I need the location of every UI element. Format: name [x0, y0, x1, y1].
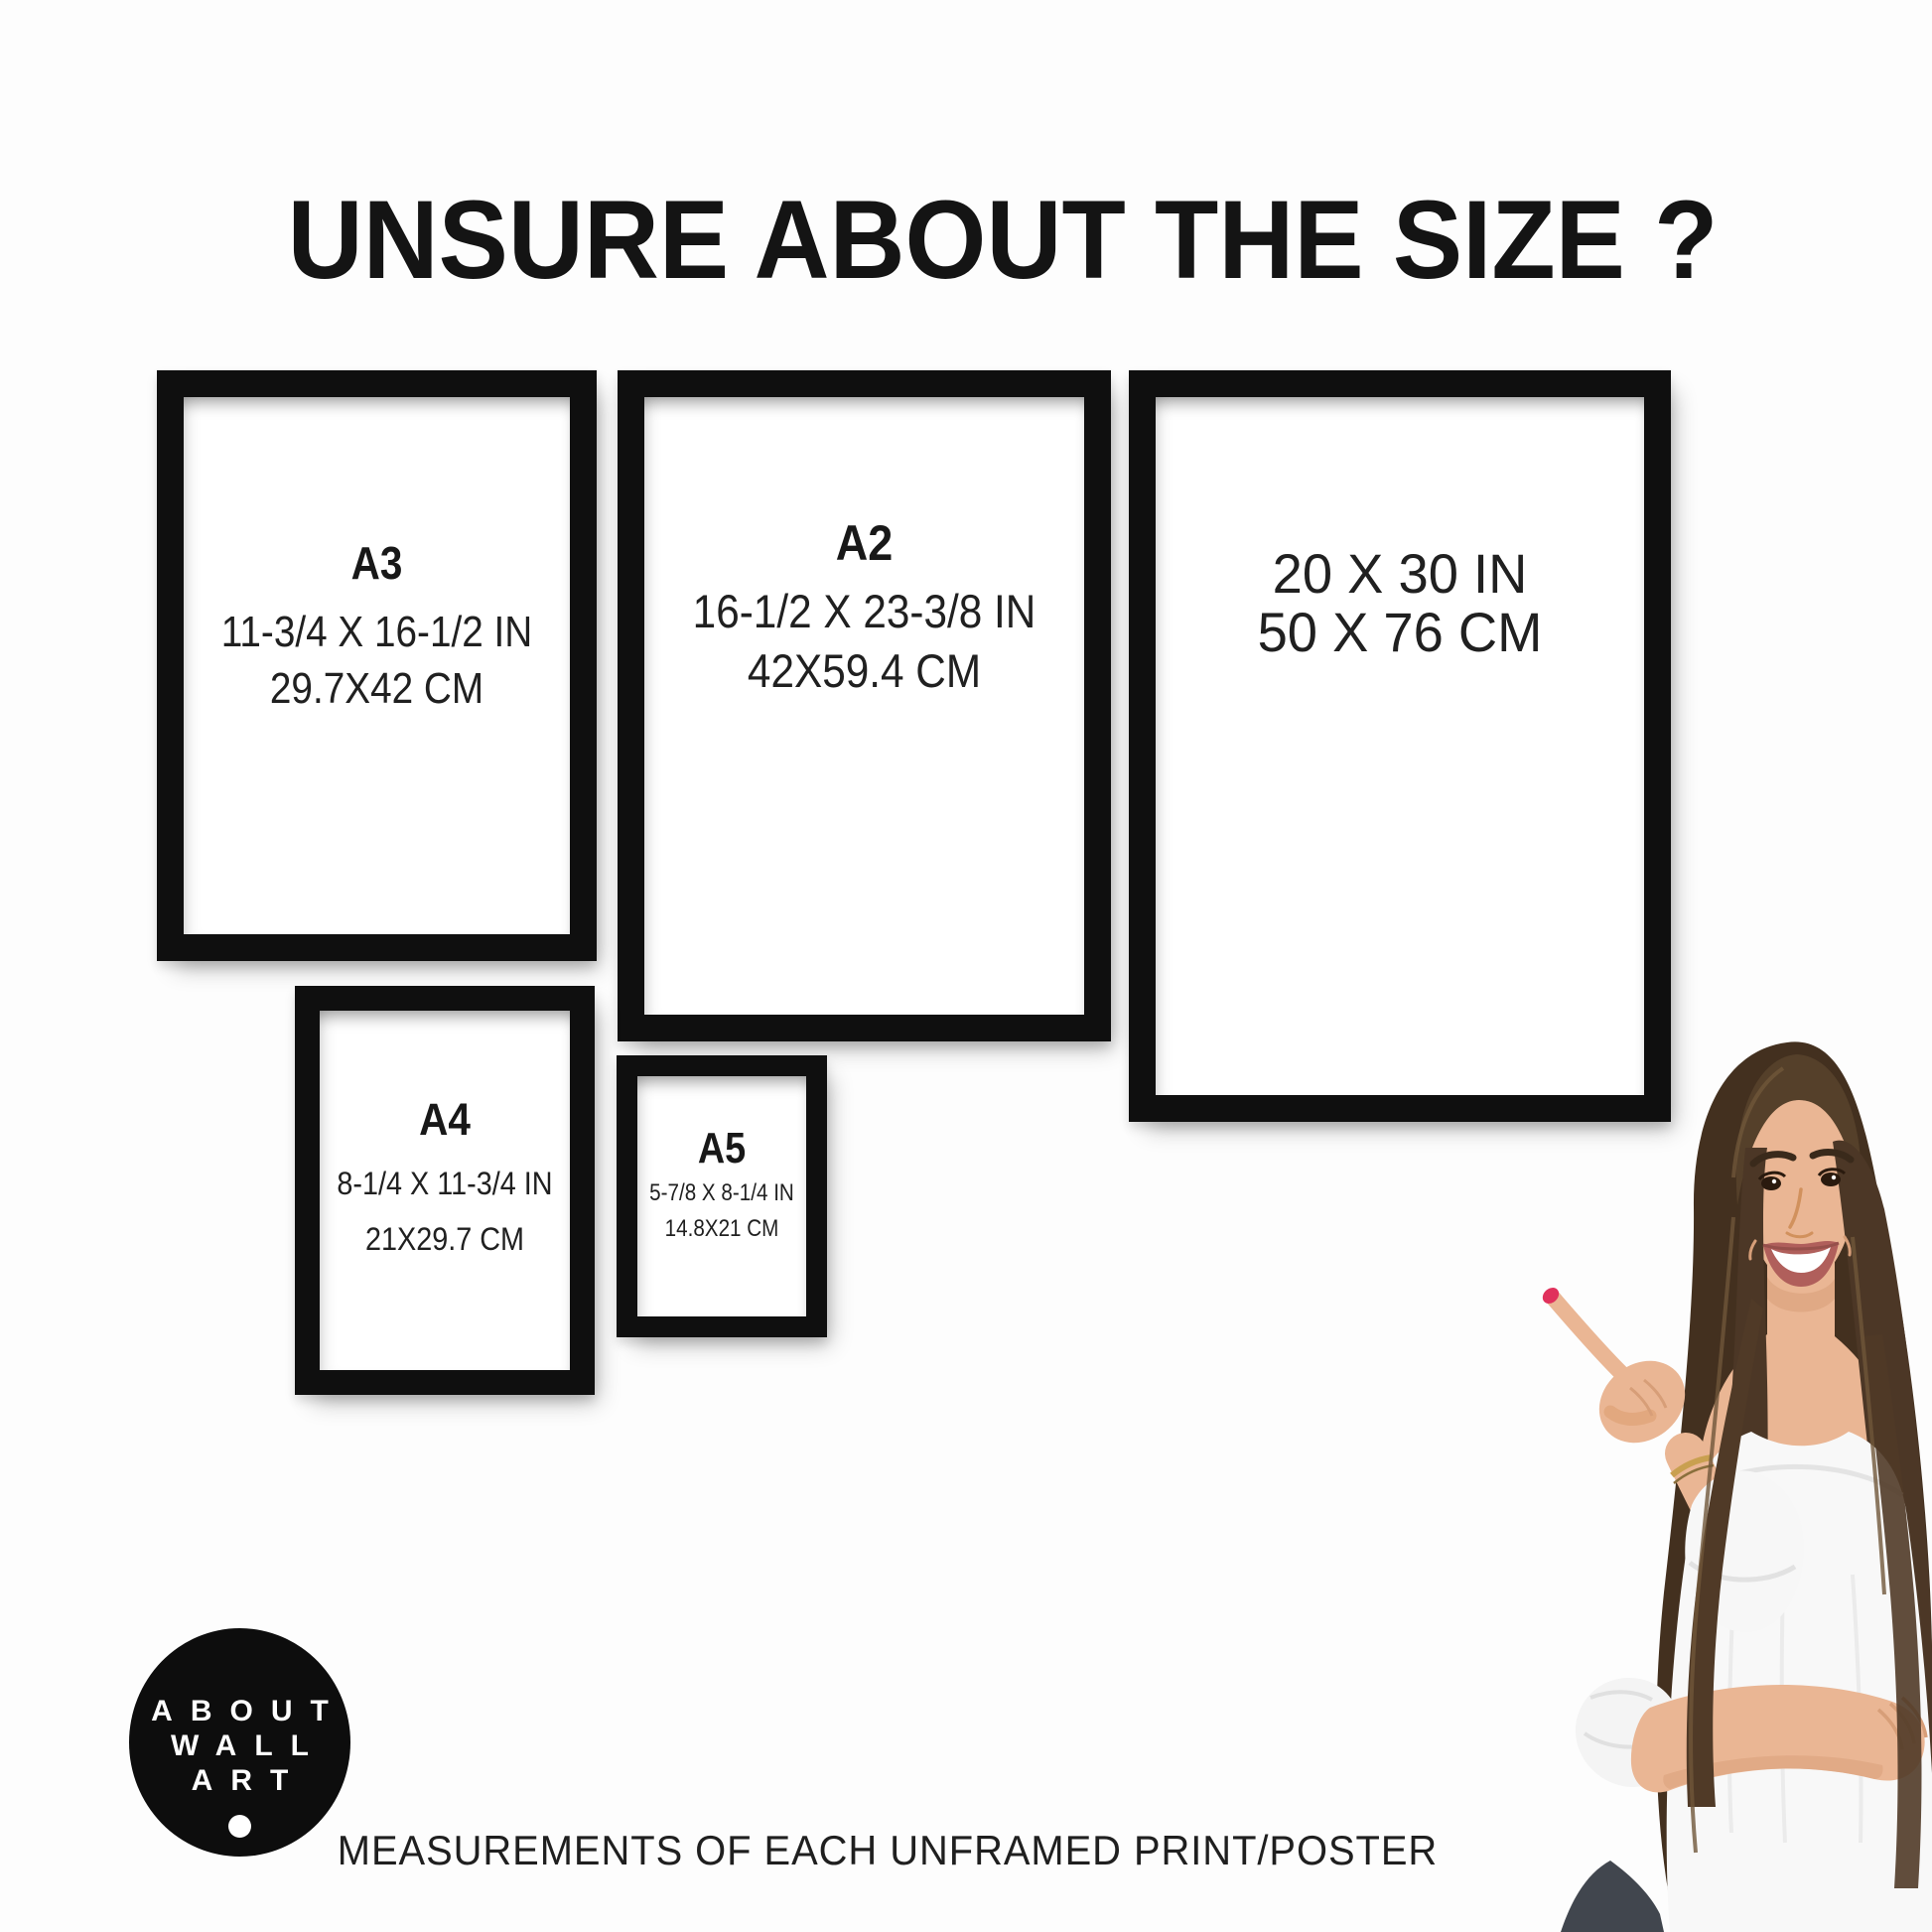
frame-a5-text: A5 5-7/8 X 8-1/4 IN 14.8X21 CM: [649, 1076, 794, 1247]
size-inches: 20 X 30 IN: [1163, 544, 1636, 603]
frame-a3-text: A3 11-3/4 X 16-1/2 IN 29.7X42 CM: [207, 397, 546, 717]
size-inches: 11-3/4 X 16-1/2 IN: [207, 604, 546, 660]
size-name: A3: [207, 536, 546, 590]
size-name: A4: [333, 1094, 558, 1146]
logo-line-1: ABOUT: [133, 1694, 346, 1728]
frame-a4-text: A4 8-1/4 X 11-3/4 IN 21X29.7 CM: [333, 1011, 558, 1267]
size-name: A2: [666, 514, 1062, 572]
frame-a5: A5 5-7/8 X 8-1/4 IN 14.8X21 CM: [617, 1055, 827, 1337]
frame-a2-mat: A2 16-1/2 X 23-3/8 IN 42X59.4 CM: [644, 397, 1084, 1015]
size-cm: 29.7X42 CM: [207, 660, 546, 717]
frame-20x30-text: 20 X 30 IN 50 X 76 CM: [1163, 397, 1636, 662]
frame-20x30-mat: 20 X 30 IN 50 X 76 CM: [1156, 397, 1644, 1095]
frame-20x30: 20 X 30 IN 50 X 76 CM: [1129, 370, 1671, 1122]
frame-a4: A4 8-1/4 X 11-3/4 IN 21X29.7 CM: [295, 986, 595, 1395]
frame-a2: A2 16-1/2 X 23-3/8 IN 42X59.4 CM: [618, 370, 1111, 1041]
logo-line-2: WALL: [153, 1728, 327, 1763]
size-cm: 14.8X21 CM: [649, 1211, 794, 1247]
page-title: UNSURE ABOUT THE SIZE ?: [94, 174, 1910, 307]
woman-pointing-photo: [1436, 1038, 1932, 1932]
frame-a2-text: A2 16-1/2 X 23-3/8 IN 42X59.4 CM: [666, 397, 1062, 701]
size-cm: 50 X 76 CM: [1163, 603, 1636, 661]
size-name: A5: [649, 1124, 794, 1173]
frame-a4-mat: A4 8-1/4 X 11-3/4 IN 21X29.7 CM: [320, 1011, 570, 1370]
size-cm: 42X59.4 CM: [666, 641, 1062, 701]
size-inches: 5-7/8 X 8-1/4 IN: [649, 1175, 794, 1211]
about-wall-art-logo: ABOUT WALL ART: [129, 1628, 350, 1857]
size-cm: 21X29.7 CM: [333, 1211, 558, 1267]
size-guide-poster: UNSURE ABOUT THE SIZE ? A3 11-3/4 X 16-1…: [0, 0, 1932, 1932]
frame-a3: A3 11-3/4 X 16-1/2 IN 29.7X42 CM: [157, 370, 597, 961]
woman-pointing-illustration: [1436, 1038, 1932, 1932]
logo-line-3: ART: [174, 1763, 307, 1798]
size-inches: 8-1/4 X 11-3/4 IN: [333, 1156, 558, 1211]
frame-a3-mat: A3 11-3/4 X 16-1/2 IN 29.7X42 CM: [184, 397, 570, 934]
frame-a5-mat: A5 5-7/8 X 8-1/4 IN 14.8X21 CM: [637, 1076, 806, 1316]
size-inches: 16-1/2 X 23-3/8 IN: [666, 582, 1062, 641]
